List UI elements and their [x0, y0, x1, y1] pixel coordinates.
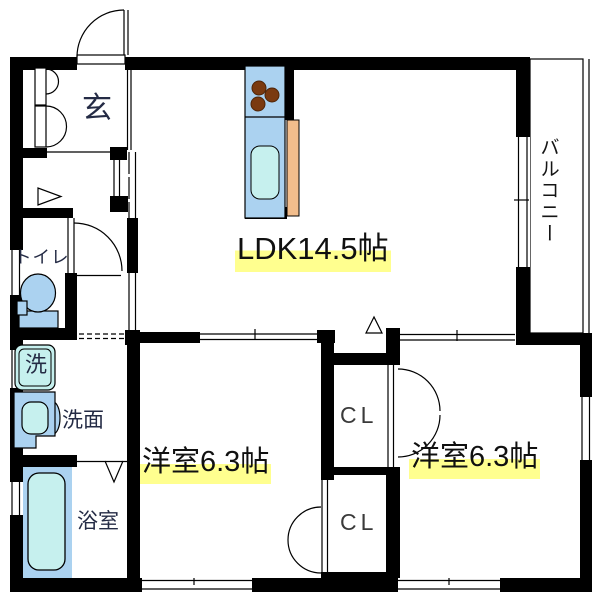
opening-arrow-hall — [38, 188, 61, 205]
window-bedroom-right-east — [580, 397, 592, 460]
sliding-doors — [200, 329, 515, 343]
toilet-door — [68, 218, 122, 276]
bathtub-unit — [23, 467, 72, 578]
genkan-label: 玄 — [82, 94, 112, 124]
wall-ldk-balcony-upper — [516, 57, 530, 137]
wall-left-room-west — [127, 332, 140, 580]
entrance-door — [77, 10, 128, 64]
shoe-cabinet-door-arc-2 — [46, 106, 67, 147]
wall-ldk-bottom-right — [516, 333, 592, 345]
closet-lower-door-arc-1 — [288, 507, 321, 540]
bathroom-label: 浴室 — [77, 511, 119, 532]
entrance-sill — [77, 55, 125, 64]
wall-closet-bottom — [321, 572, 398, 592]
closet-lower-doors — [288, 480, 328, 573]
floor-plan-drawing — [0, 0, 600, 598]
toilet-flush — [17, 301, 27, 315]
wall-right-outer-lower — [580, 345, 592, 592]
wall-closet-east — [386, 467, 400, 580]
window-ldk-balcony-sliding — [514, 137, 530, 267]
wall-hall-ldk — [127, 218, 138, 273]
toilet-fixture — [17, 274, 58, 328]
shoe-cabinet — [35, 68, 67, 147]
balcony-label: バルコニー — [537, 137, 557, 277]
closet-lower-door-arc-2 — [288, 540, 321, 573]
ldk-label-text: LDK14.5帖 — [235, 231, 391, 272]
wall-washroom-bath-divider — [10, 455, 77, 467]
closet-lower-label: CL — [340, 511, 377, 534]
sliding-door-bedroom-left — [200, 329, 317, 343]
wall-genkan-bottom — [10, 148, 47, 158]
wall-stub-genkan-a — [110, 147, 127, 160]
bathroom-folding-door — [105, 461, 123, 482]
window-bathroom — [10, 482, 23, 515]
closet-upper-label: CL — [340, 404, 377, 427]
wall-closet-west — [321, 330, 334, 480]
shoe-cabinet-door-arc-1 — [46, 69, 58, 94]
bedroom-left-label: 洋室6.3帖 — [140, 448, 271, 477]
wall-toilet-top — [10, 208, 73, 218]
sliding-door-bedroom-right — [400, 330, 515, 343]
wall-top-main — [125, 57, 517, 70]
kitchen-counter-side — [287, 120, 299, 216]
washbasin-unit — [14, 392, 60, 448]
stove-burner-icon — [252, 81, 266, 95]
stove-burner-icon — [265, 88, 279, 102]
opening-arrow-ldk-niche — [366, 317, 382, 333]
toilet-label: トイレ — [14, 249, 70, 267]
washbasin-bowl — [22, 402, 48, 434]
wall-toilet-right — [65, 273, 77, 328]
wall-ldk-bottom-left — [138, 332, 200, 343]
kitchen-sink — [251, 146, 279, 199]
wall-stub-genkan-b — [110, 196, 128, 212]
washroom-label: 洗面 — [62, 410, 104, 431]
window-bedroom-right — [398, 578, 500, 592]
wall-closet-divider — [321, 467, 397, 475]
ldk-label: LDK14.5帖 — [235, 233, 391, 264]
bathtub — [28, 473, 65, 570]
window-bedroom-left — [142, 578, 252, 592]
bedroom-right-label-text: 洋室6.3帖 — [409, 441, 540, 479]
floor-plan: 玄 トイレ 洗 洗面 浴室 LDK14.5帖 洋室6.3帖 洋室6.3帖 CL … — [0, 0, 600, 598]
washer-label: 洗 — [25, 354, 47, 376]
stove-burner-icon — [251, 97, 265, 111]
bedroom-right-label: 洋室6.3帖 — [409, 443, 540, 472]
wall-closet-east-stub — [386, 328, 400, 365]
closet-upper-door-arc-1 — [398, 369, 440, 411]
bedroom-left-label-text: 洋室6.3帖 — [140, 446, 271, 484]
entrance-door-arc — [77, 10, 124, 57]
wall-bottom-outer — [10, 578, 592, 592]
toilet-door-arc — [74, 223, 122, 271]
